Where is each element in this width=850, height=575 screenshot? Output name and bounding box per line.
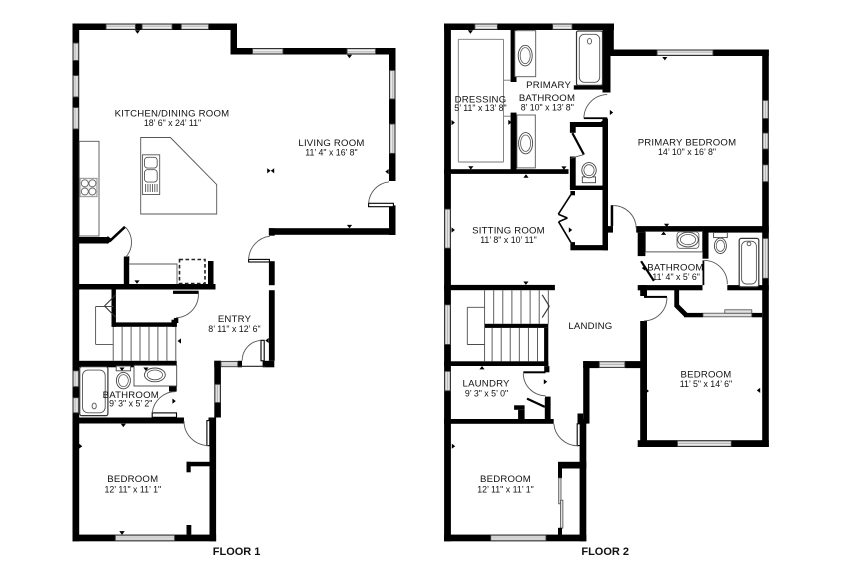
- svg-text:12’ 11" x 11’ 1": 12’ 11" x 11’ 1": [104, 485, 161, 495]
- svg-text:FLOOR 2: FLOOR 2: [581, 546, 629, 558]
- svg-text:9’ 3" x 5’ 2": 9’ 3" x 5’ 2": [109, 399, 152, 409]
- svg-text:11’ 4" x 5’ 6": 11’ 4" x 5’ 6": [652, 272, 700, 282]
- svg-text:9’ 3" x 5’ 0": 9’ 3" x 5’ 0": [465, 389, 508, 399]
- svg-text:14’ 10" x 16’ 8": 14’ 10" x 16’ 8": [658, 147, 716, 157]
- svg-text:11’ 4" x 16’ 8": 11’ 4" x 16’ 8": [305, 147, 357, 157]
- svg-text:18’ 6" x 24’ 11": 18’ 6" x 24’ 11": [144, 118, 201, 128]
- svg-text:BEDROOM: BEDROOM: [107, 474, 158, 485]
- svg-text:FLOOR 1: FLOOR 1: [213, 546, 261, 558]
- svg-text:8’ 10" x 13’ 8": 8’ 10" x 13’ 8": [521, 102, 574, 112]
- svg-text:8’ 11" x 12’ 6": 8’ 11" x 12’ 6": [208, 324, 260, 334]
- svg-text:12’ 11" x 11’ 1": 12’ 11" x 11’ 1": [477, 485, 534, 495]
- svg-text:BEDROOM: BEDROOM: [480, 474, 531, 485]
- svg-text:LANDING: LANDING: [568, 321, 612, 332]
- svg-text:PRIMARY: PRIMARY: [526, 80, 571, 91]
- svg-text:5’ 11" x 13’ 8": 5’ 11" x 13’ 8": [454, 103, 506, 113]
- svg-text:11’ 8" x 10’ 11": 11’ 8" x 10’ 11": [480, 235, 537, 245]
- svg-text:11’ 5" x 14’ 6": 11’ 5" x 14’ 6": [680, 379, 732, 389]
